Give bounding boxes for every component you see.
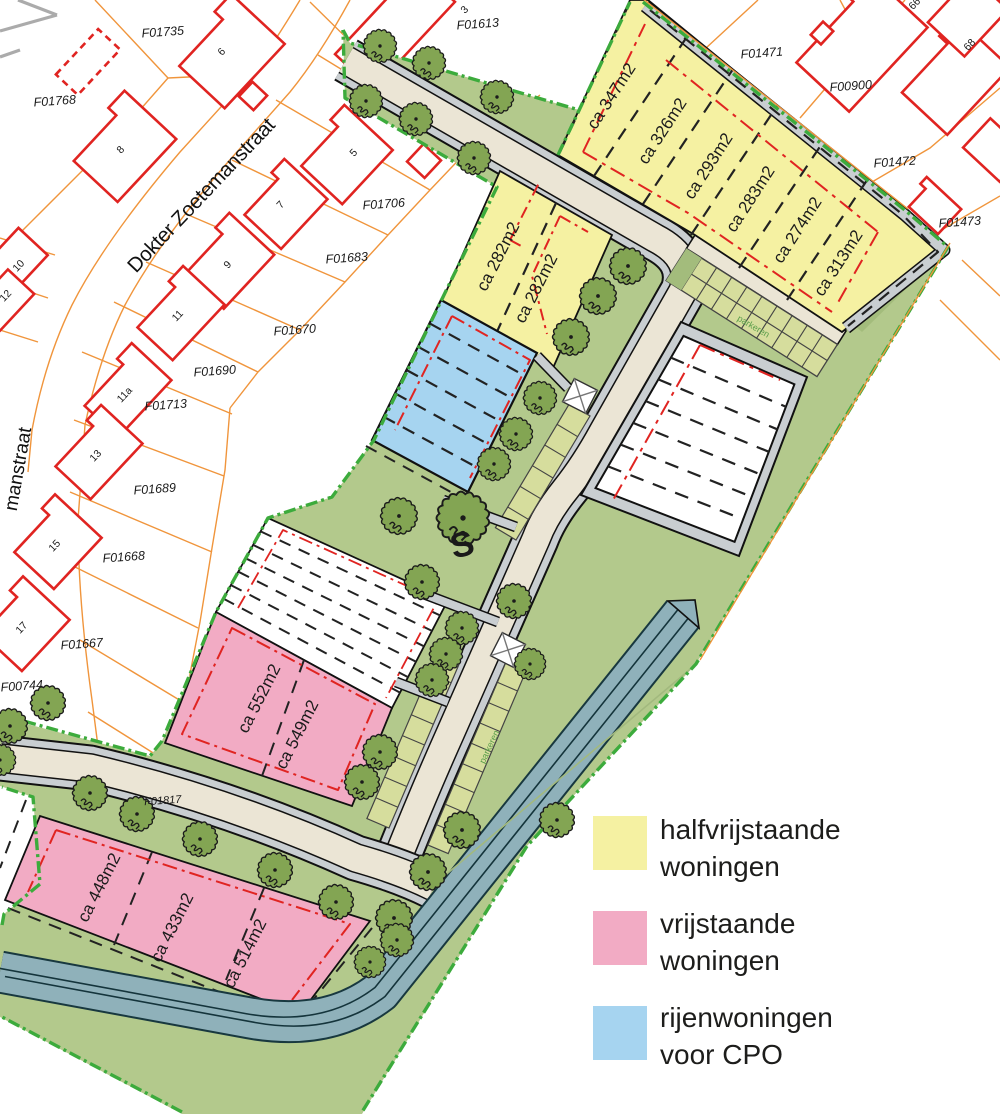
svg-text:vrijstaande: vrijstaande [660,908,795,939]
svg-text:F01690: F01690 [193,363,236,380]
svg-text:rijenwoningen: rijenwoningen [660,1002,833,1033]
svg-text:F01472: F01472 [873,154,916,171]
svg-text:F01713: F01713 [144,397,187,414]
svg-text:halfvrijstaande: halfvrijstaande [660,814,841,845]
svg-text:F01613: F01613 [456,16,499,33]
svg-text:F00900: F00900 [829,78,872,95]
svg-text:F01706: F01706 [362,196,405,213]
svg-text:F01668: F01668 [102,549,145,566]
svg-text:F01768: F01768 [33,93,76,110]
svg-text:F01683: F01683 [325,250,368,267]
svg-text:F01473: F01473 [938,214,981,231]
svg-text:F01689: F01689 [133,481,176,498]
svg-text:F01670: F01670 [273,322,316,339]
svg-text:voor CPO: voor CPO [660,1039,783,1070]
svg-text:F01471: F01471 [740,45,783,62]
svg-text:woningen: woningen [659,851,780,882]
svg-text:F01735: F01735 [141,24,184,41]
svg-text:woningen: woningen [659,945,780,976]
